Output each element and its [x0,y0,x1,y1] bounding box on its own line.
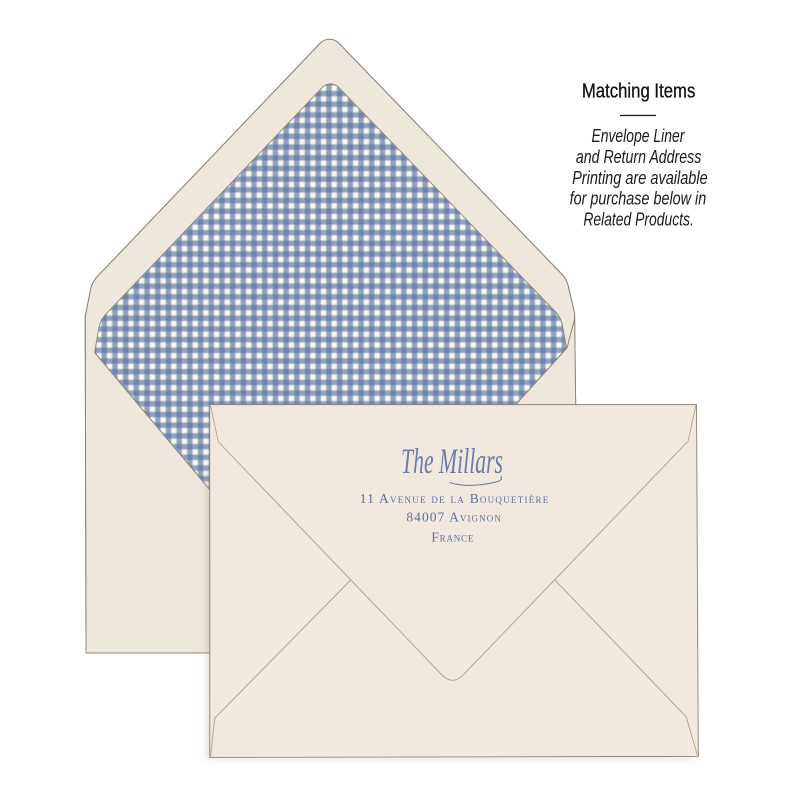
svg-text:Matching Items: Matching Items [582,81,696,103]
svg-text:France: France [431,530,474,545]
svg-text:Envelope Liner: Envelope Liner [591,126,685,146]
svg-text:for purchase below in: for purchase below in [570,189,707,209]
svg-text:11 Avenue de la Bouquetière: 11 Avenue de la Bouquetière [360,491,549,506]
svg-text:Printing are available: Printing are available [572,168,708,188]
svg-text:Related Products.: Related Products. [583,209,694,229]
svg-text:84007 Avignon: 84007 Avignon [406,510,501,525]
svg-text:The Millars: The Millars [401,441,503,481]
svg-text:and Return Address: and Return Address [576,147,701,167]
